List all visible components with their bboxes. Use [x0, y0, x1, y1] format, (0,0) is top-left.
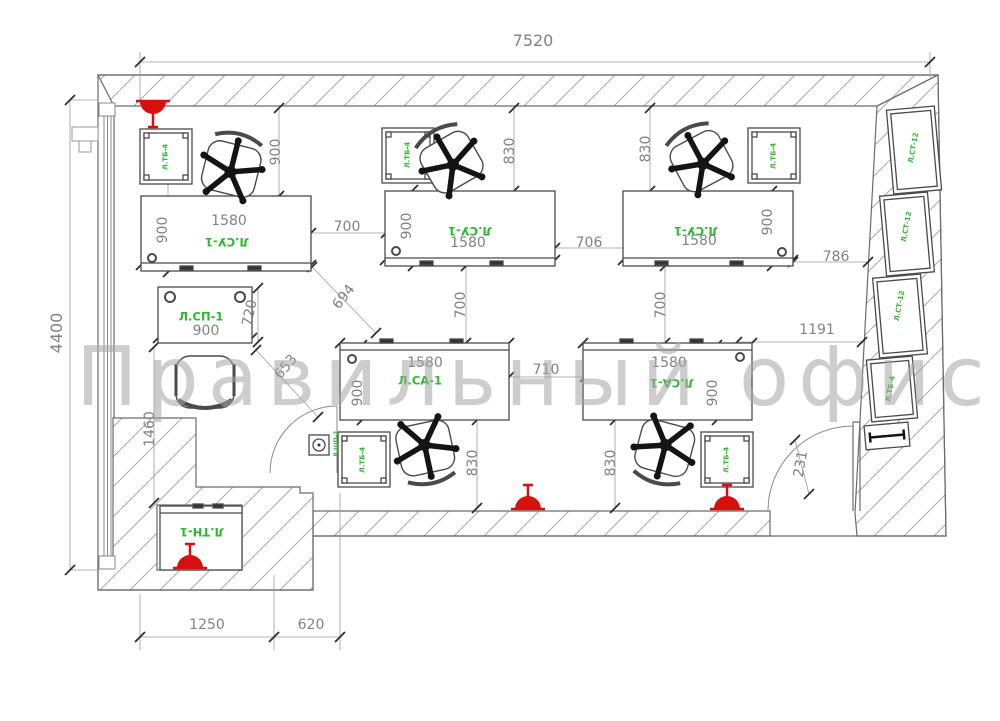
floor-plan: 7520 4400 900 1580 900 700 694 900 1580 …: [0, 0, 1000, 721]
furniture-label: Л.СТ-12: [894, 290, 906, 322]
furniture-label: Л.ТБ-4: [360, 447, 367, 473]
furniture-label: Л.ТБ-4: [724, 447, 731, 473]
dim-label: 786: [823, 250, 850, 264]
furniture-label: Л.СУ-1: [674, 224, 718, 236]
furniture-label: Л.ТБ-4: [405, 142, 412, 168]
dim-label: 7520: [513, 33, 554, 49]
dim-label: 830: [604, 450, 618, 477]
dim-label: 900: [761, 209, 775, 236]
furniture-label: Л.СУ-1: [448, 224, 492, 236]
furniture-label: Л.СА-1: [398, 375, 442, 387]
furniture-label: Л.ШП-2: [334, 431, 340, 457]
dim-label: 1191: [799, 323, 835, 337]
dim-label: 710: [533, 363, 560, 377]
dim-label: 830: [466, 450, 480, 477]
dim-label: 1580: [211, 214, 247, 228]
furniture-label: Л.СУ-1: [205, 235, 249, 247]
dim-label: 700: [334, 220, 361, 234]
furniture-label: Л.ТБ-4: [163, 144, 170, 170]
furniture-label: Л.СТ-12: [901, 211, 913, 243]
dim-label: 620: [298, 618, 325, 632]
dim-label: 231: [792, 450, 810, 479]
furniture-label: Л.СТ-12: [908, 132, 920, 164]
furniture-label: Л.ТБ-4: [885, 375, 896, 402]
dim-label: 830: [503, 138, 517, 165]
furniture-label: Л.ТБ-4: [771, 143, 778, 169]
dim-label: 4400: [49, 313, 65, 354]
dim-label: 1250: [189, 618, 225, 632]
furniture-label: Л.ТН-1: [180, 525, 224, 537]
dim-label: 900: [269, 139, 283, 166]
dim-label: 1580: [450, 236, 486, 250]
dim-label: 706: [576, 236, 603, 250]
dim-label: 700: [454, 292, 468, 319]
dim-label: 900: [706, 380, 720, 407]
labels-layer: 7520 4400 900 1580 900 700 694 900 1580 …: [0, 0, 1000, 721]
dim-label: 720: [240, 298, 259, 327]
dim-label: 1580: [651, 356, 687, 370]
dim-label: 694: [330, 282, 357, 312]
dim-label: 900: [400, 213, 414, 240]
dim-label: 1580: [407, 356, 443, 370]
furniture-label: Л.СП-1: [179, 311, 224, 323]
dim-label: 830: [639, 136, 653, 163]
furniture-label: Л.СА-1: [650, 376, 694, 388]
dim-label: 900: [156, 217, 170, 244]
dim-label: 900: [193, 324, 220, 338]
dim-label: 1460: [143, 411, 157, 447]
dim-label: 700: [654, 292, 668, 319]
dim-label: 653: [272, 352, 300, 381]
dim-label: 900: [351, 380, 365, 407]
